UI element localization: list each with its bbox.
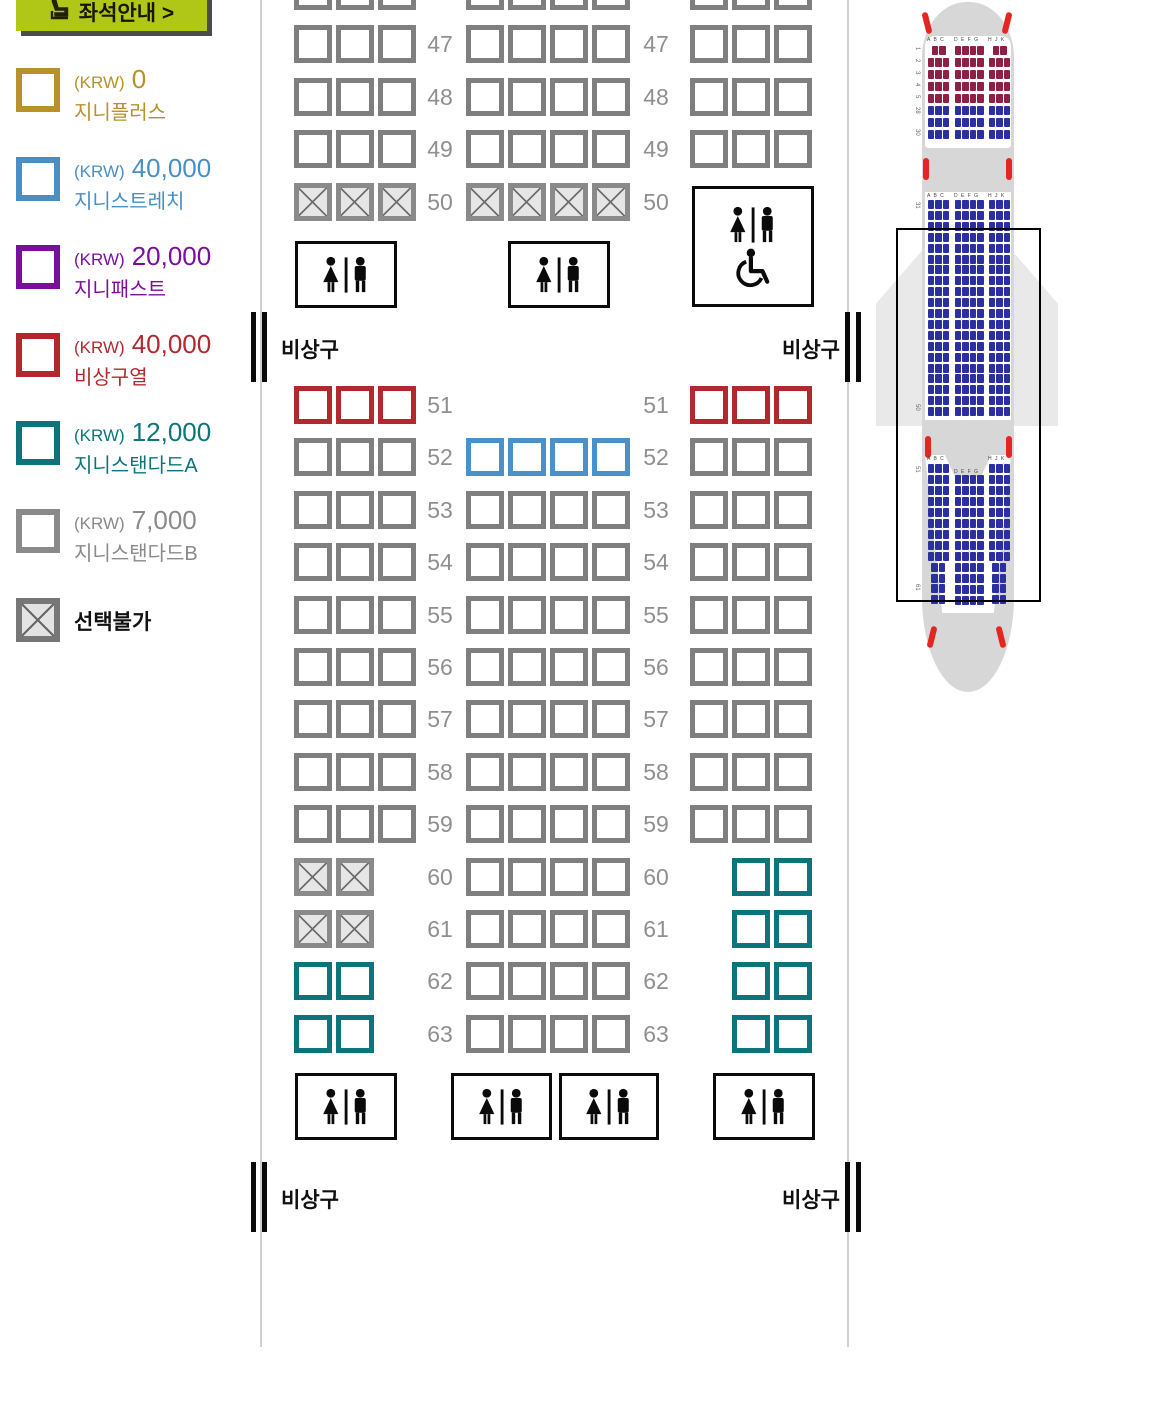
seat-block	[690, 1015, 812, 1053]
row-number: 52	[632, 438, 680, 476]
seat-row-50-blocked	[294, 183, 332, 221]
seat-row-56[interactable]	[378, 648, 416, 686]
seat-row-52[interactable]	[336, 438, 374, 476]
seat-block	[466, 491, 630, 529]
minimap-seat	[962, 82, 969, 91]
seat-row-60[interactable]	[508, 858, 546, 896]
minimap-seat	[962, 106, 969, 115]
seat-guide-button[interactable]: 좌석안내 >	[16, 0, 207, 31]
minimap-seat	[1004, 70, 1011, 79]
seat-row-57[interactable]	[550, 700, 588, 738]
seat-row-56[interactable]	[466, 648, 504, 686]
seat-row-49[interactable]	[336, 130, 374, 168]
seat-row-61[interactable]	[508, 910, 546, 948]
seat-row-49[interactable]	[774, 130, 812, 168]
seat-row-51[interactable]	[774, 386, 812, 424]
seat-row-57[interactable]	[774, 700, 812, 738]
seat-selection-page: 좌석안내 > (KRW)0 지니플러스 (KRW)40,000 지니스트레치 (…	[0, 0, 1170, 1411]
seat-row-58[interactable]	[336, 753, 374, 791]
minimap-seat	[996, 130, 1003, 139]
seat-row-49[interactable]	[550, 130, 588, 168]
seat-row-54[interactable]	[508, 543, 546, 581]
seat-row-61[interactable]	[466, 910, 504, 948]
minimap-seat	[1004, 200, 1011, 209]
seat-row-51[interactable]	[336, 386, 374, 424]
seat-row-57[interactable]	[592, 700, 630, 738]
seat-block	[466, 753, 630, 791]
seat-row-53[interactable]	[550, 491, 588, 529]
minimap-seat	[943, 58, 950, 67]
seat-row-55[interactable]	[378, 596, 416, 634]
minimap-door-mark	[923, 158, 929, 180]
seat-row-59[interactable]	[508, 805, 546, 843]
seat-row-49[interactable]	[690, 130, 728, 168]
seat-row-58[interactable]	[508, 753, 546, 791]
seat-row-55[interactable]	[294, 596, 332, 634]
seat-row-60[interactable]	[550, 858, 588, 896]
seat-row-53[interactable]	[466, 491, 504, 529]
minimap-seat	[962, 130, 969, 139]
minimap-seat	[1004, 58, 1011, 67]
seat-row-51[interactable]	[378, 386, 416, 424]
seat-row-63[interactable]	[294, 1015, 332, 1053]
legend-price: 0	[132, 64, 146, 95]
minimap-seat	[928, 211, 935, 220]
seat-block	[294, 78, 416, 116]
seat-row-63[interactable]	[336, 1015, 374, 1053]
minimap-row-label: 4	[914, 83, 920, 86]
seat-row-61-blocked	[336, 910, 374, 948]
row-number: 54	[416, 543, 464, 581]
seat-block	[466, 700, 630, 738]
row-number: 48	[632, 78, 680, 116]
seat-row-46[interactable]	[508, 0, 546, 10]
row-number: 59	[416, 805, 464, 843]
seat-block	[294, 962, 416, 1000]
minimap-seat	[935, 200, 942, 209]
legend-currency: (KRW)	[74, 162, 125, 182]
seat-block	[690, 25, 812, 63]
seat-row-53[interactable]	[732, 491, 770, 529]
minimap-seat	[1004, 94, 1011, 103]
seat-row-52[interactable]	[294, 438, 332, 476]
seat-block	[690, 700, 812, 738]
seat-row-56[interactable]	[732, 648, 770, 686]
seat-row-61[interactable]	[774, 910, 812, 948]
seat-row-54[interactable]	[690, 543, 728, 581]
minimap-row-label: 30	[914, 129, 920, 136]
seat-row-56[interactable]	[690, 648, 728, 686]
seat-block	[294, 805, 416, 843]
minimap-seat-letters: D E F G	[954, 37, 979, 43]
minimap-seat	[962, 118, 969, 127]
row-number: 54	[632, 543, 680, 581]
legend-price: 12,000	[132, 417, 212, 448]
legend-name: 지니플러스	[74, 96, 166, 125]
seat-guide-label: 좌석안내 >	[79, 0, 174, 27]
legend-swatch	[16, 509, 60, 553]
minimap-seat-letters: A B C	[927, 193, 945, 199]
seat-row-53[interactable]	[508, 491, 546, 529]
seat-row-47[interactable]	[550, 25, 588, 63]
row-number: 62	[632, 962, 680, 1000]
exit-label: 비상구	[281, 334, 339, 364]
seat-row-58[interactable]	[294, 753, 332, 791]
seat-row-54[interactable]	[336, 543, 374, 581]
seat-row-62[interactable]	[466, 962, 504, 1000]
seat-row-48[interactable]	[378, 78, 416, 116]
seat-row-47[interactable]	[294, 25, 332, 63]
seat-block	[690, 648, 812, 686]
seat-row-59[interactable]	[592, 805, 630, 843]
seat-row-47[interactable]	[336, 25, 374, 63]
seat-row-56[interactable]	[336, 648, 374, 686]
seat-row-53[interactable]	[592, 491, 630, 529]
seat-row-62[interactable]	[774, 962, 812, 1000]
seat-block	[466, 543, 630, 581]
minimap-seat	[943, 211, 950, 220]
seat-row-63[interactable]	[508, 1015, 546, 1053]
seat-row-57[interactable]	[508, 700, 546, 738]
seat-row-52[interactable]	[508, 438, 546, 476]
seat-row-54[interactable]	[732, 543, 770, 581]
seat-row-59[interactable]	[466, 805, 504, 843]
minimap-seat	[962, 94, 969, 103]
legend-price: 40,000	[132, 153, 212, 184]
seat-row-49[interactable]	[294, 130, 332, 168]
seat-row-62[interactable]	[732, 962, 770, 1000]
seat-row-46[interactable]	[732, 0, 770, 10]
seat-row-58[interactable]	[378, 753, 416, 791]
seat-row-59[interactable]	[550, 805, 588, 843]
legend-name: 지니스트레치	[74, 185, 211, 214]
seat-row-48[interactable]	[592, 78, 630, 116]
legend-price: 20,000	[132, 241, 212, 272]
seat-row-48[interactable]	[294, 78, 332, 116]
seat-row-60[interactable]	[732, 858, 770, 896]
seat-row-55[interactable]	[732, 596, 770, 634]
minimap-row-label: 28	[914, 107, 920, 114]
minimap-seat	[977, 106, 984, 115]
seat-row-59[interactable]	[690, 805, 728, 843]
row-number: 49	[632, 130, 680, 168]
seat-row-46[interactable]	[690, 0, 728, 10]
seat-row-46[interactable]	[592, 0, 630, 10]
seat-row-48[interactable]	[550, 78, 588, 116]
minimap-seat	[1004, 118, 1011, 127]
seat-row-61[interactable]	[592, 910, 630, 948]
seat-row-51[interactable]	[294, 386, 332, 424]
seat-row-48[interactable]	[336, 78, 374, 116]
seat-row-61[interactable]	[550, 910, 588, 948]
row-number: 47	[416, 25, 464, 63]
seat-row-46[interactable]	[466, 0, 504, 10]
seat-row-62[interactable]	[336, 962, 374, 1000]
seat-row-47[interactable]	[592, 25, 630, 63]
seat-block	[690, 543, 812, 581]
seat-row-48[interactable]	[508, 78, 546, 116]
seat-block	[294, 1015, 416, 1053]
seat-row-56[interactable]	[550, 648, 588, 686]
seat-row-54[interactable]	[592, 543, 630, 581]
seat-row-59[interactable]	[378, 805, 416, 843]
seat-block	[690, 753, 812, 791]
seat-block	[466, 0, 630, 10]
legend-item-standardA: (KRW)12,000 지니스탠다드A	[16, 421, 236, 477]
minimap-row-label: 5	[914, 95, 920, 98]
row-number: 58	[416, 753, 464, 791]
seat-row-48[interactable]	[774, 78, 812, 116]
accessible-lavatory	[692, 186, 814, 307]
seat-row-51[interactable]	[732, 386, 770, 424]
seat-row-60-blocked	[336, 858, 374, 896]
minimap-seat	[955, 94, 962, 103]
seat-block	[294, 183, 416, 221]
seat-row-52[interactable]	[550, 438, 588, 476]
seat-row-47[interactable]	[732, 25, 770, 63]
seat-row-61[interactable]	[732, 910, 770, 948]
seat-row-48[interactable]	[466, 78, 504, 116]
seat-row-56[interactable]	[774, 648, 812, 686]
minimap-seat	[928, 82, 935, 91]
minimap-row-label: 3	[914, 71, 920, 74]
exit-door-mark	[856, 1162, 861, 1232]
seat-row-57[interactable]	[466, 700, 504, 738]
seat-block	[294, 130, 416, 168]
seat-row-60-blocked	[294, 858, 332, 896]
seat-row-60[interactable]	[592, 858, 630, 896]
seat-block	[466, 910, 630, 948]
seat-row-47[interactable]	[508, 25, 546, 63]
minimap-seat	[989, 211, 996, 220]
seat-row-53[interactable]	[690, 491, 728, 529]
minimap-seat	[989, 130, 996, 139]
legend-swatch	[16, 333, 60, 377]
seat-row-59[interactable]	[336, 805, 374, 843]
seat-row-58[interactable]	[466, 753, 504, 791]
row-number: 51	[632, 386, 680, 424]
minimap-seat	[955, 70, 962, 79]
minimap-seat	[970, 82, 977, 91]
exit-door-mark	[251, 1162, 256, 1232]
seat-row-52[interactable]	[732, 438, 770, 476]
minimap-seat	[935, 106, 942, 115]
lavatory	[713, 1073, 815, 1140]
seat-row-56[interactable]	[294, 648, 332, 686]
seat-block	[466, 858, 630, 896]
seat-block	[690, 962, 812, 1000]
seat-row-52[interactable]	[592, 438, 630, 476]
seat-row-57[interactable]	[690, 700, 728, 738]
seat-row-55[interactable]	[774, 596, 812, 634]
minimap-seat-letters: A B C	[927, 37, 945, 43]
seat-row-52[interactable]	[690, 438, 728, 476]
seat-row-48[interactable]	[732, 78, 770, 116]
seat-row-49[interactable]	[378, 130, 416, 168]
seat-row-55[interactable]	[508, 596, 546, 634]
legend-swatch	[16, 421, 60, 465]
aircraft-minimap: A B CD E F GH J KA B CD E F GH J KA B CD…	[870, 0, 1070, 712]
seat-row-58[interactable]	[732, 753, 770, 791]
seat-row-62[interactable]	[592, 962, 630, 1000]
minimap-seat	[996, 94, 1003, 103]
seat-row-63[interactable]	[466, 1015, 504, 1053]
seat-row-61-blocked	[294, 910, 332, 948]
seat-block	[466, 183, 630, 221]
minimap-seat	[943, 118, 950, 127]
minimap-seat	[955, 82, 962, 91]
seat-block	[690, 438, 812, 476]
minimap-seat	[935, 94, 942, 103]
seat-row-62[interactable]	[294, 962, 332, 1000]
row-number: 62	[416, 962, 464, 1000]
legend-name: 비상구열	[74, 361, 211, 390]
seat-row-62[interactable]	[508, 962, 546, 1000]
legend-price: 40,000	[132, 329, 212, 360]
row-number: 52	[416, 438, 464, 476]
seat-row-46[interactable]	[336, 0, 374, 10]
seat-row-57[interactable]	[294, 700, 332, 738]
seat-row-58[interactable]	[690, 753, 728, 791]
seat-block	[294, 858, 416, 896]
seat-block	[466, 962, 630, 1000]
row-number: 46	[632, 0, 680, 10]
minimap-seat	[989, 82, 996, 91]
minimap-seat	[977, 46, 984, 55]
seat-row-49[interactable]	[466, 130, 504, 168]
seat-row-60[interactable]	[466, 858, 504, 896]
seat-row-56[interactable]	[592, 648, 630, 686]
seat-block	[690, 596, 812, 634]
minimap-seat	[996, 58, 1003, 67]
seat-block	[690, 805, 812, 843]
minimap-seat	[928, 70, 935, 79]
seat-row-55[interactable]	[336, 596, 374, 634]
seat-row-56[interactable]	[508, 648, 546, 686]
wc-icon	[473, 1088, 531, 1126]
seat-row-62[interactable]	[550, 962, 588, 1000]
minimap-seat	[989, 118, 996, 127]
seat-row-60[interactable]	[774, 858, 812, 896]
minimap-viewport[interactable]	[896, 228, 1041, 602]
cabin-wall-right	[847, 0, 849, 1347]
seat-row-57[interactable]	[378, 700, 416, 738]
seat-row-49[interactable]	[732, 130, 770, 168]
row-number: 56	[416, 648, 464, 686]
seat-row-59[interactable]	[732, 805, 770, 843]
minimap-seat	[943, 82, 950, 91]
seat-row-58[interactable]	[550, 753, 588, 791]
seat-row-55[interactable]	[466, 596, 504, 634]
seat-row-59[interactable]	[294, 805, 332, 843]
seat-row-54[interactable]	[378, 543, 416, 581]
row-number: 53	[416, 491, 464, 529]
seat-block	[294, 491, 416, 529]
seat-block	[690, 910, 812, 948]
seat-row-58[interactable]	[774, 753, 812, 791]
seat-row-54[interactable]	[774, 543, 812, 581]
minimap-seat	[970, 46, 977, 55]
seat-row-49[interactable]	[508, 130, 546, 168]
seat-row-46[interactable]	[774, 0, 812, 10]
seat-row-50-blocked	[550, 183, 588, 221]
seat-row-52[interactable]	[378, 438, 416, 476]
seat-row-57[interactable]	[336, 700, 374, 738]
seat-row-52[interactable]	[466, 438, 504, 476]
seat-row-47[interactable]	[466, 25, 504, 63]
minimap-seat	[977, 130, 984, 139]
seat-row-50-blocked	[336, 183, 374, 221]
seat-row-58[interactable]	[592, 753, 630, 791]
seat-row-54[interactable]	[466, 543, 504, 581]
minimap-row-label: 31	[914, 202, 920, 209]
minimap-seat	[928, 106, 935, 115]
minimap-seat	[962, 70, 969, 79]
seat-row-63[interactable]	[774, 1015, 812, 1053]
minimap-seat	[1004, 130, 1011, 139]
minimap-seat	[928, 130, 935, 139]
seat-row-55[interactable]	[550, 596, 588, 634]
seat-row-52[interactable]	[774, 438, 812, 476]
minimap-seat	[996, 211, 1003, 220]
minimap-seat	[996, 106, 1003, 115]
seat-row-53[interactable]	[774, 491, 812, 529]
seat-row-46[interactable]	[378, 0, 416, 10]
seat-row-53[interactable]	[336, 491, 374, 529]
seat-row-53[interactable]	[378, 491, 416, 529]
minimap-seat	[928, 58, 935, 67]
seat-row-54[interactable]	[550, 543, 588, 581]
seat-block	[294, 910, 416, 948]
seat-row-63[interactable]	[732, 1015, 770, 1053]
seat-row-63[interactable]	[592, 1015, 630, 1053]
seat-row-57[interactable]	[732, 700, 770, 738]
seat-block	[294, 753, 416, 791]
seat-row-54[interactable]	[294, 543, 332, 581]
minimap-seat	[970, 94, 977, 103]
seat-row-51[interactable]	[690, 386, 728, 424]
legend-currency: (KRW)	[74, 338, 125, 358]
seat-row-59[interactable]	[774, 805, 812, 843]
minimap-seat	[955, 118, 962, 127]
seat-row-55[interactable]	[690, 596, 728, 634]
seat-row-47[interactable]	[378, 25, 416, 63]
seat-row-49[interactable]	[592, 130, 630, 168]
seat-row-47[interactable]	[690, 25, 728, 63]
seat-row-46[interactable]	[550, 0, 588, 10]
legend-name: 지니스탠다드A	[74, 449, 211, 478]
seat-block	[294, 438, 416, 476]
seat-row-55[interactable]	[592, 596, 630, 634]
row-number: 60	[416, 858, 464, 896]
minimap-seat	[970, 130, 977, 139]
wc-icon	[724, 206, 782, 244]
legend-item-genistretch: (KRW)40,000 지니스트레치	[16, 157, 236, 213]
seat-row-48[interactable]	[690, 78, 728, 116]
seat-block	[466, 130, 630, 168]
seat-row-50-blocked	[592, 183, 630, 221]
minimap-seat	[943, 106, 950, 115]
seat-block	[690, 130, 812, 168]
seat-row-53[interactable]	[294, 491, 332, 529]
minimap-seat	[955, 211, 962, 220]
minimap-seat	[943, 70, 950, 79]
seat-row-47[interactable]	[774, 25, 812, 63]
seat-row-46[interactable]	[294, 0, 332, 10]
seat-row-63[interactable]	[550, 1015, 588, 1053]
minimap-seat	[928, 94, 935, 103]
legend-item-standardB: (KRW)7,000 지니스탠다드B	[16, 509, 236, 565]
